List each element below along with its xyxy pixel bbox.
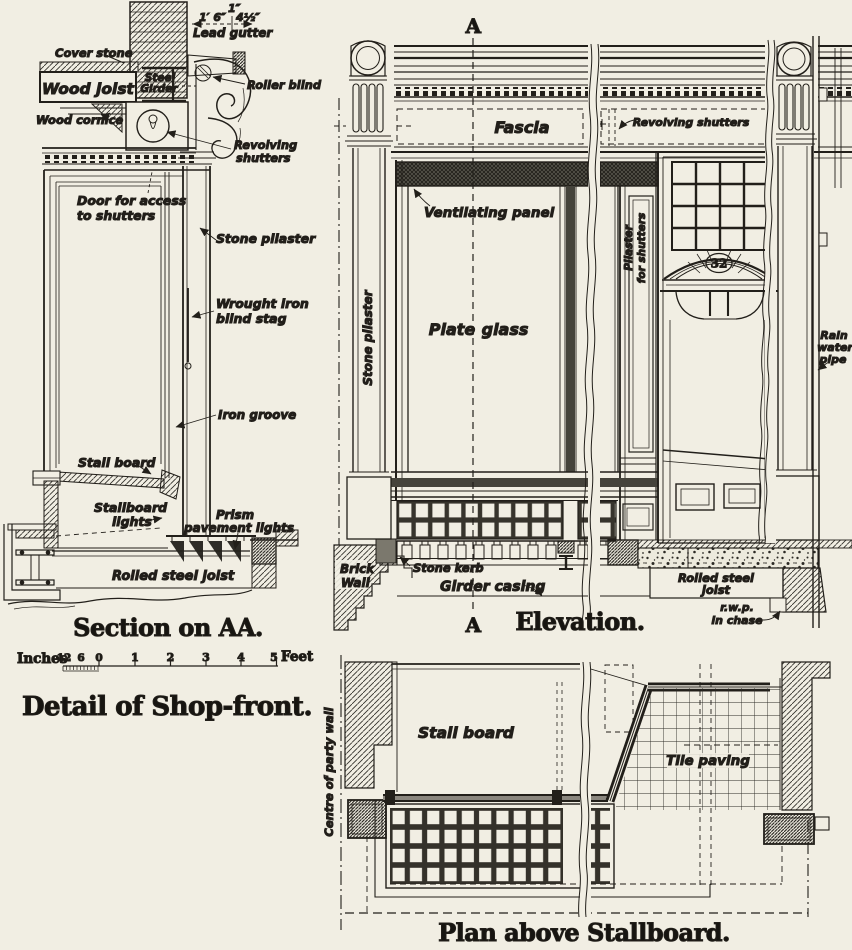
girder-casing-label: Girder casing: [440, 579, 545, 595]
section-marker-top: A: [464, 14, 481, 38]
drawing-title: Detail of Shop-front.: [22, 692, 312, 722]
roller-blind-label: Roller blind: [247, 78, 322, 92]
rain-water-pipe-label3: pipe: [819, 353, 848, 366]
plate-glass-label2: glass: [482, 320, 529, 339]
stall-board-label: Stall board: [78, 455, 156, 470]
plan-title: Plan above Stallboard.: [438, 918, 730, 947]
scale-mark-6: 6: [77, 652, 84, 664]
stallboard-lights-label: Stallboard: [94, 500, 168, 515]
scale-mark-2ft: 2: [167, 651, 175, 664]
centre-party-wall-label: Centre of party wall: [322, 706, 336, 836]
scale-mark-3ft: 3: [202, 651, 210, 664]
revolving-shutters-elev-label: Revolving shutters: [633, 116, 750, 129]
scale-mark-0: 0: [95, 652, 102, 664]
door-number: 32: [711, 257, 728, 271]
dim-wall: 4½″: [235, 11, 260, 24]
blind-stag-label: Wrought iron: [216, 296, 309, 311]
dim-gutter-width: 1′ 6″: [199, 11, 226, 24]
prism-lights-label: Prism: [216, 508, 254, 522]
scale-bar: Inches 12 6 0 1 2 3 4 5 Feet: [17, 649, 314, 671]
brick-wall-label: Brick: [340, 562, 375, 576]
revolving-shutters-label2: shutters: [236, 151, 291, 165]
stone-kerb-label: Stone kerb: [413, 561, 484, 575]
iron-groove-label: Iron groove: [218, 408, 296, 422]
scale-mark-5ft: 5: [270, 651, 278, 664]
section-marker-bottom: A: [464, 613, 481, 637]
stone-pilaster-label: Stone pilaster: [216, 231, 316, 246]
stone-pilaster-elev-label: Stone pilaster: [361, 289, 375, 385]
revolving-shutters-label: Revolving: [234, 138, 297, 152]
blind-stag-label2: blind stag: [216, 311, 287, 326]
pilaster-for-shutters-label: Pilaster: [623, 224, 635, 270]
section-title: Section on AA.: [73, 613, 263, 642]
scale-mark-12: 12: [57, 652, 72, 664]
shopfront-detail-plate: 1″ 1′ 6″ 4½″ Lead gutter Cover stone Woo…: [0, 0, 852, 950]
wood-joist-label: Wood joist: [42, 80, 135, 98]
elevation-drawing: [334, 36, 852, 630]
stall-board-plan-label: Stall board: [418, 724, 515, 742]
rwp-in-chase-label2: in chase: [711, 614, 763, 627]
stallboard-lights-label2: lights: [112, 514, 152, 529]
rolled-steel-joist-elev-label2: joist: [700, 583, 731, 597]
brick-wall-label2: Wall: [341, 576, 371, 590]
prism-lights-label2: pavement lights: [183, 521, 294, 535]
scale-mark-4ft: 4: [237, 651, 245, 664]
fascia-label: Fascia: [494, 118, 549, 137]
rolled-steel-joist-label: Rolled steel joist: [112, 569, 235, 584]
door-access-label: Door for access: [77, 193, 186, 208]
lead-gutter-label: Lead gutter: [193, 26, 273, 40]
cover-stone-label: Cover stone: [55, 46, 133, 60]
scale-feet-label: Feet: [281, 649, 314, 665]
ventilating-panel-label: Ventilating panel: [424, 205, 555, 221]
door-access-label2: to shutters: [77, 208, 155, 223]
scale-mark-1ft: 1: [131, 651, 139, 664]
steel-girder-label2: Girder: [140, 83, 178, 95]
pilaster-for-shutters-label2: for shutters: [636, 213, 648, 283]
wood-cornice-label: Wood cornice: [36, 113, 123, 127]
rwp-in-chase-label: r.w.p.: [720, 601, 754, 614]
tile-paving-label: Tile paving: [666, 753, 750, 769]
elevation-title: Elevation.: [515, 607, 644, 636]
plan-drawing: [341, 655, 830, 930]
plate-glass-label: Plate: [429, 320, 476, 339]
drawing-canvas: 1″ 1′ 6″ 4½″ Lead gutter Cover stone Woo…: [0, 0, 852, 950]
